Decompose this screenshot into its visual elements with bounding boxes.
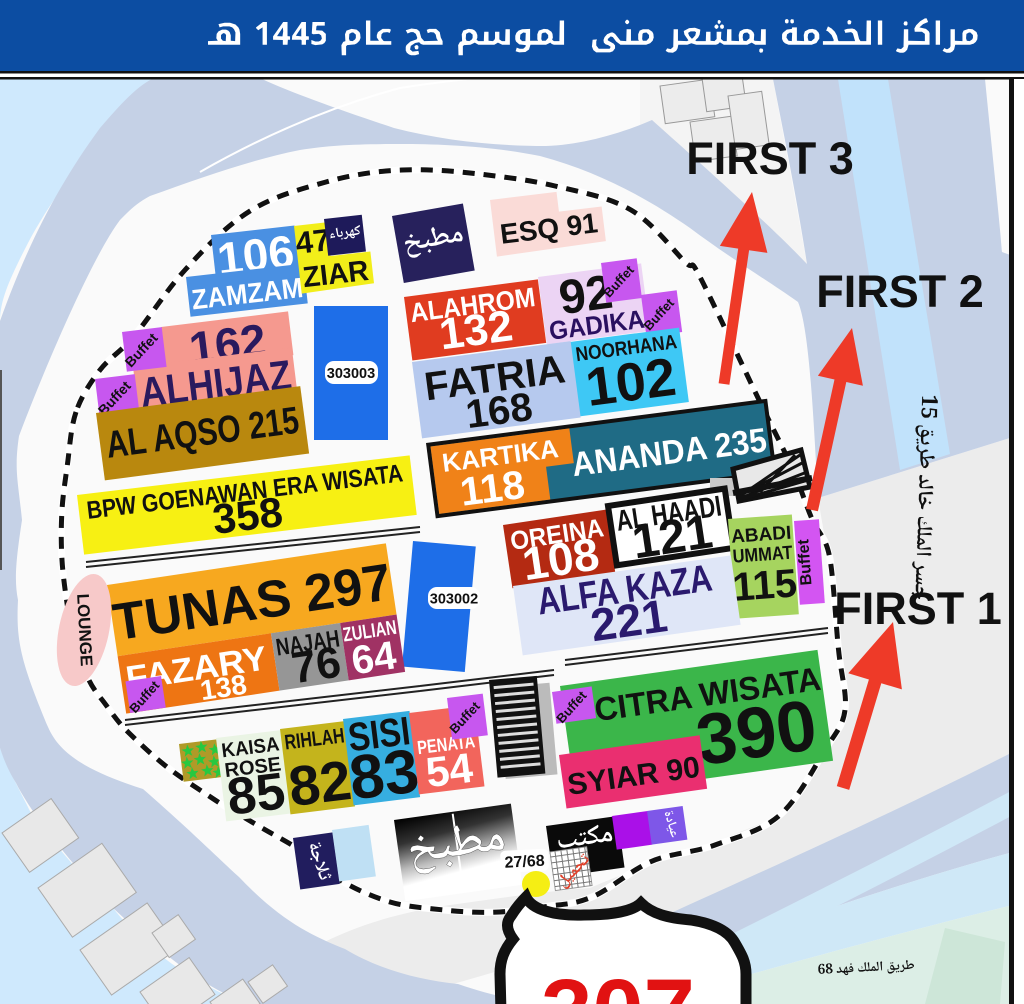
svg-text:168: 168 — [463, 385, 535, 437]
svg-text:FIRST 2: FIRST 2 — [816, 266, 984, 317]
svg-text:307: 307 — [541, 961, 695, 1004]
svg-text:FIRST 3: FIRST 3 — [686, 133, 854, 184]
svg-text:Buffet: Buffet — [795, 538, 815, 586]
svg-text:303003: 303003 — [327, 366, 375, 382]
svg-text:85: 85 — [224, 762, 288, 827]
svg-text:102: 102 — [582, 347, 679, 418]
svg-text:303002: 303002 — [430, 592, 478, 608]
svg-text:358: 358 — [210, 488, 285, 543]
svg-text:27/68: 27/68 — [504, 853, 545, 872]
svg-text:221: 221 — [587, 589, 670, 651]
svg-text:76: 76 — [288, 638, 344, 694]
svg-text:118: 118 — [458, 463, 528, 515]
svg-text:115: 115 — [731, 561, 798, 609]
svg-text:64: 64 — [349, 633, 400, 683]
svg-text:390: 390 — [691, 685, 821, 781]
svg-text:LOUNGE: LOUNGE — [73, 593, 96, 667]
svg-text:83: 83 — [346, 736, 423, 813]
svg-text:82: 82 — [285, 748, 355, 818]
svg-text:54: 54 — [423, 744, 476, 796]
